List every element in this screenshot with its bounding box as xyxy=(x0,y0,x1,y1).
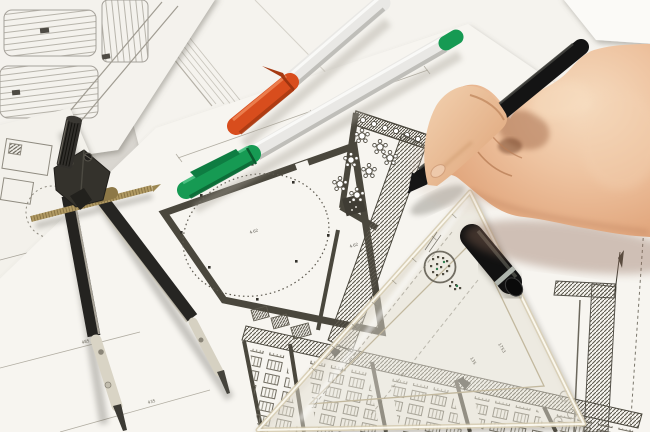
pen-tail-green xyxy=(446,37,456,43)
desk-scene: 485 435 4.62 xyxy=(0,0,650,432)
photo-architect-desk: 485 435 4.62 xyxy=(0,0,650,432)
